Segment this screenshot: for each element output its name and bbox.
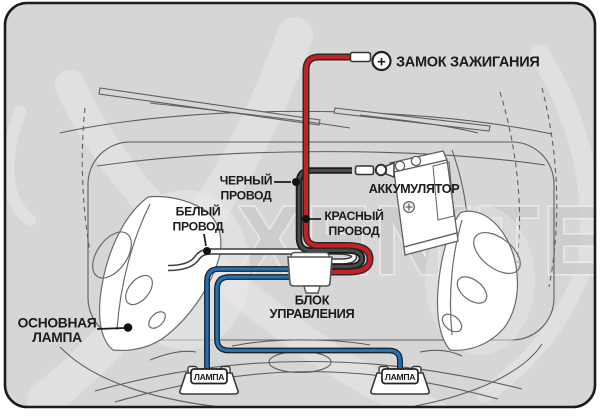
svg-text:ПРОВОД: ПРОВОД xyxy=(329,224,381,238)
svg-text:КРАСНЫЙ: КРАСНЫЙ xyxy=(324,208,383,223)
lamp-left: ЛАМПА xyxy=(180,367,238,395)
red-wire-dot xyxy=(302,215,310,223)
svg-text:ПРОВОД: ПРОВОД xyxy=(221,189,273,203)
ignition-label: ЗАМОК ЗАЖИГАНИЯ xyxy=(396,55,539,71)
plus-terminal-sign: + xyxy=(377,53,386,70)
battery-label: АККУМУЛЯТОР xyxy=(369,182,460,196)
lamp-right-label: ЛАМПА xyxy=(385,372,415,382)
svg-text:ОСНОВНАЯ: ОСНОВНАЯ xyxy=(18,316,97,331)
svg-text:ЧЕРНЫЙ: ЧЕРНЫЙ xyxy=(220,173,273,188)
diagram-canvas: XENITE xyxy=(0,0,600,419)
svg-text:ЛАМПА: ЛАМПА xyxy=(32,330,82,345)
ignition-connector xyxy=(351,53,371,62)
battery-plus-mark xyxy=(404,202,415,213)
svg-text:УПРАВЛЕНИЯ: УПРАВЛЕНИЯ xyxy=(270,306,355,321)
svg-text:БЕЛЫЙ: БЕЛЫЙ xyxy=(176,204,221,219)
white-wire-dot xyxy=(203,247,211,255)
lamp-right: ЛАМПА xyxy=(371,367,429,395)
wiring-diagram: XENITE xyxy=(0,0,600,419)
black-wire-dot xyxy=(292,178,300,186)
main-lamp-dot xyxy=(124,323,133,332)
lamp-left-label: ЛАМПА xyxy=(194,372,224,382)
svg-text:ПРОВОД: ПРОВОД xyxy=(173,220,225,234)
